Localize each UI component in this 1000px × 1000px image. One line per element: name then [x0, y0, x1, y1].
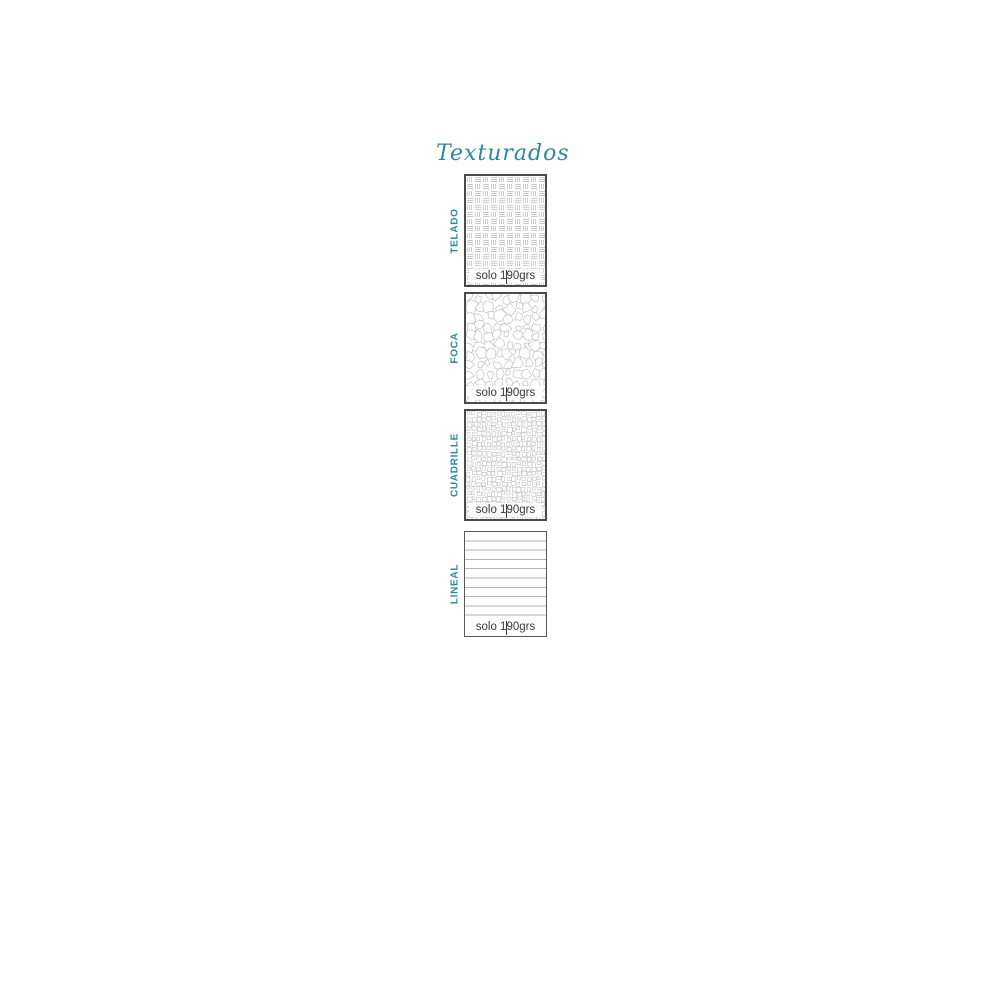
swatch-box-telado: solo 190grs [464, 174, 547, 287]
swatch-cuadrille: CUADRILLE solo 190grs [464, 409, 547, 521]
swatch-label-telado: TELADO [450, 208, 461, 253]
swatch-label-lineal: LINEAL [450, 564, 461, 604]
swatch-foca: FOCA solo 190grs [464, 292, 547, 404]
swatch-box-lineal: solo 190grs [464, 531, 547, 637]
swatch-lineal: LINEAL solo 190grs [464, 531, 547, 637]
center-tick-mark [506, 504, 507, 518]
page-title: Texturados [436, 141, 556, 166]
swatch-label-foca: FOCA [450, 332, 461, 363]
center-tick-mark [506, 270, 507, 284]
texture-catalog-page: Texturados TELADO solo 190grs [0, 0, 1000, 1000]
swatch-label-cuadrille: CUADRILLE [450, 433, 461, 497]
swatch-box-cuadrille: solo 190grs [464, 409, 547, 521]
center-tick-mark [506, 621, 507, 635]
texture-lineal-rules [465, 532, 546, 616]
swatch-telado: TELADO solo 190grs [464, 174, 547, 287]
center-tick-mark [506, 387, 507, 401]
swatch-box-foca: solo 190grs [464, 292, 547, 404]
